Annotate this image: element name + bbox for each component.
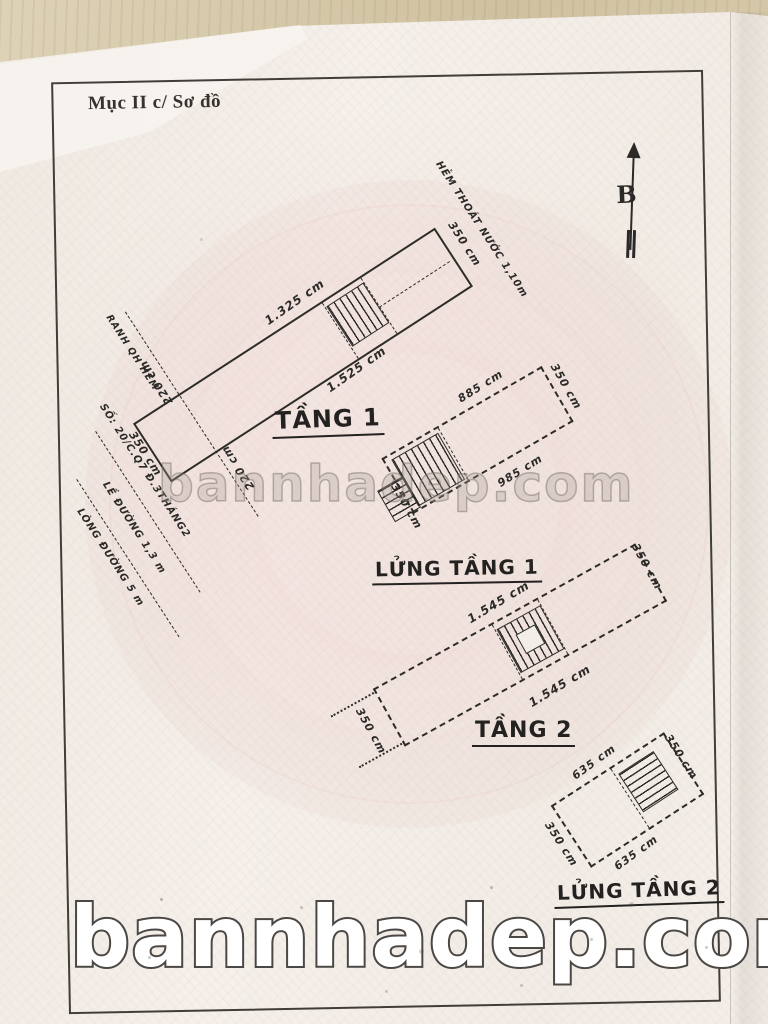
- north-arrow-tail: [626, 230, 629, 258]
- compass-north-label: B: [616, 179, 637, 209]
- partition-line: [379, 261, 450, 308]
- paper-dirt-specks: [160, 898, 163, 901]
- section-header: Mục II c/ Sơ đồ: [88, 91, 221, 115]
- north-arrow-icon: B: [610, 141, 654, 264]
- north-arrow-tail: [632, 230, 635, 258]
- floor-label-tang-1: TẦNG 1: [271, 403, 384, 439]
- staircase-icon: [497, 605, 565, 673]
- stair-landing: [516, 624, 546, 654]
- staircase-icon: [326, 282, 389, 346]
- watermark-center: bannhadep.com: [158, 455, 635, 513]
- floor-label-lung-tang-1: LỬNG TẦNG 1: [372, 555, 542, 586]
- floor-label-tang-2: TẦNG 2: [472, 718, 575, 747]
- watermark-bottom: bannhadep.com: [70, 888, 768, 986]
- staircase-icon: [618, 751, 678, 812]
- paper-fold-edge: [730, 12, 768, 1024]
